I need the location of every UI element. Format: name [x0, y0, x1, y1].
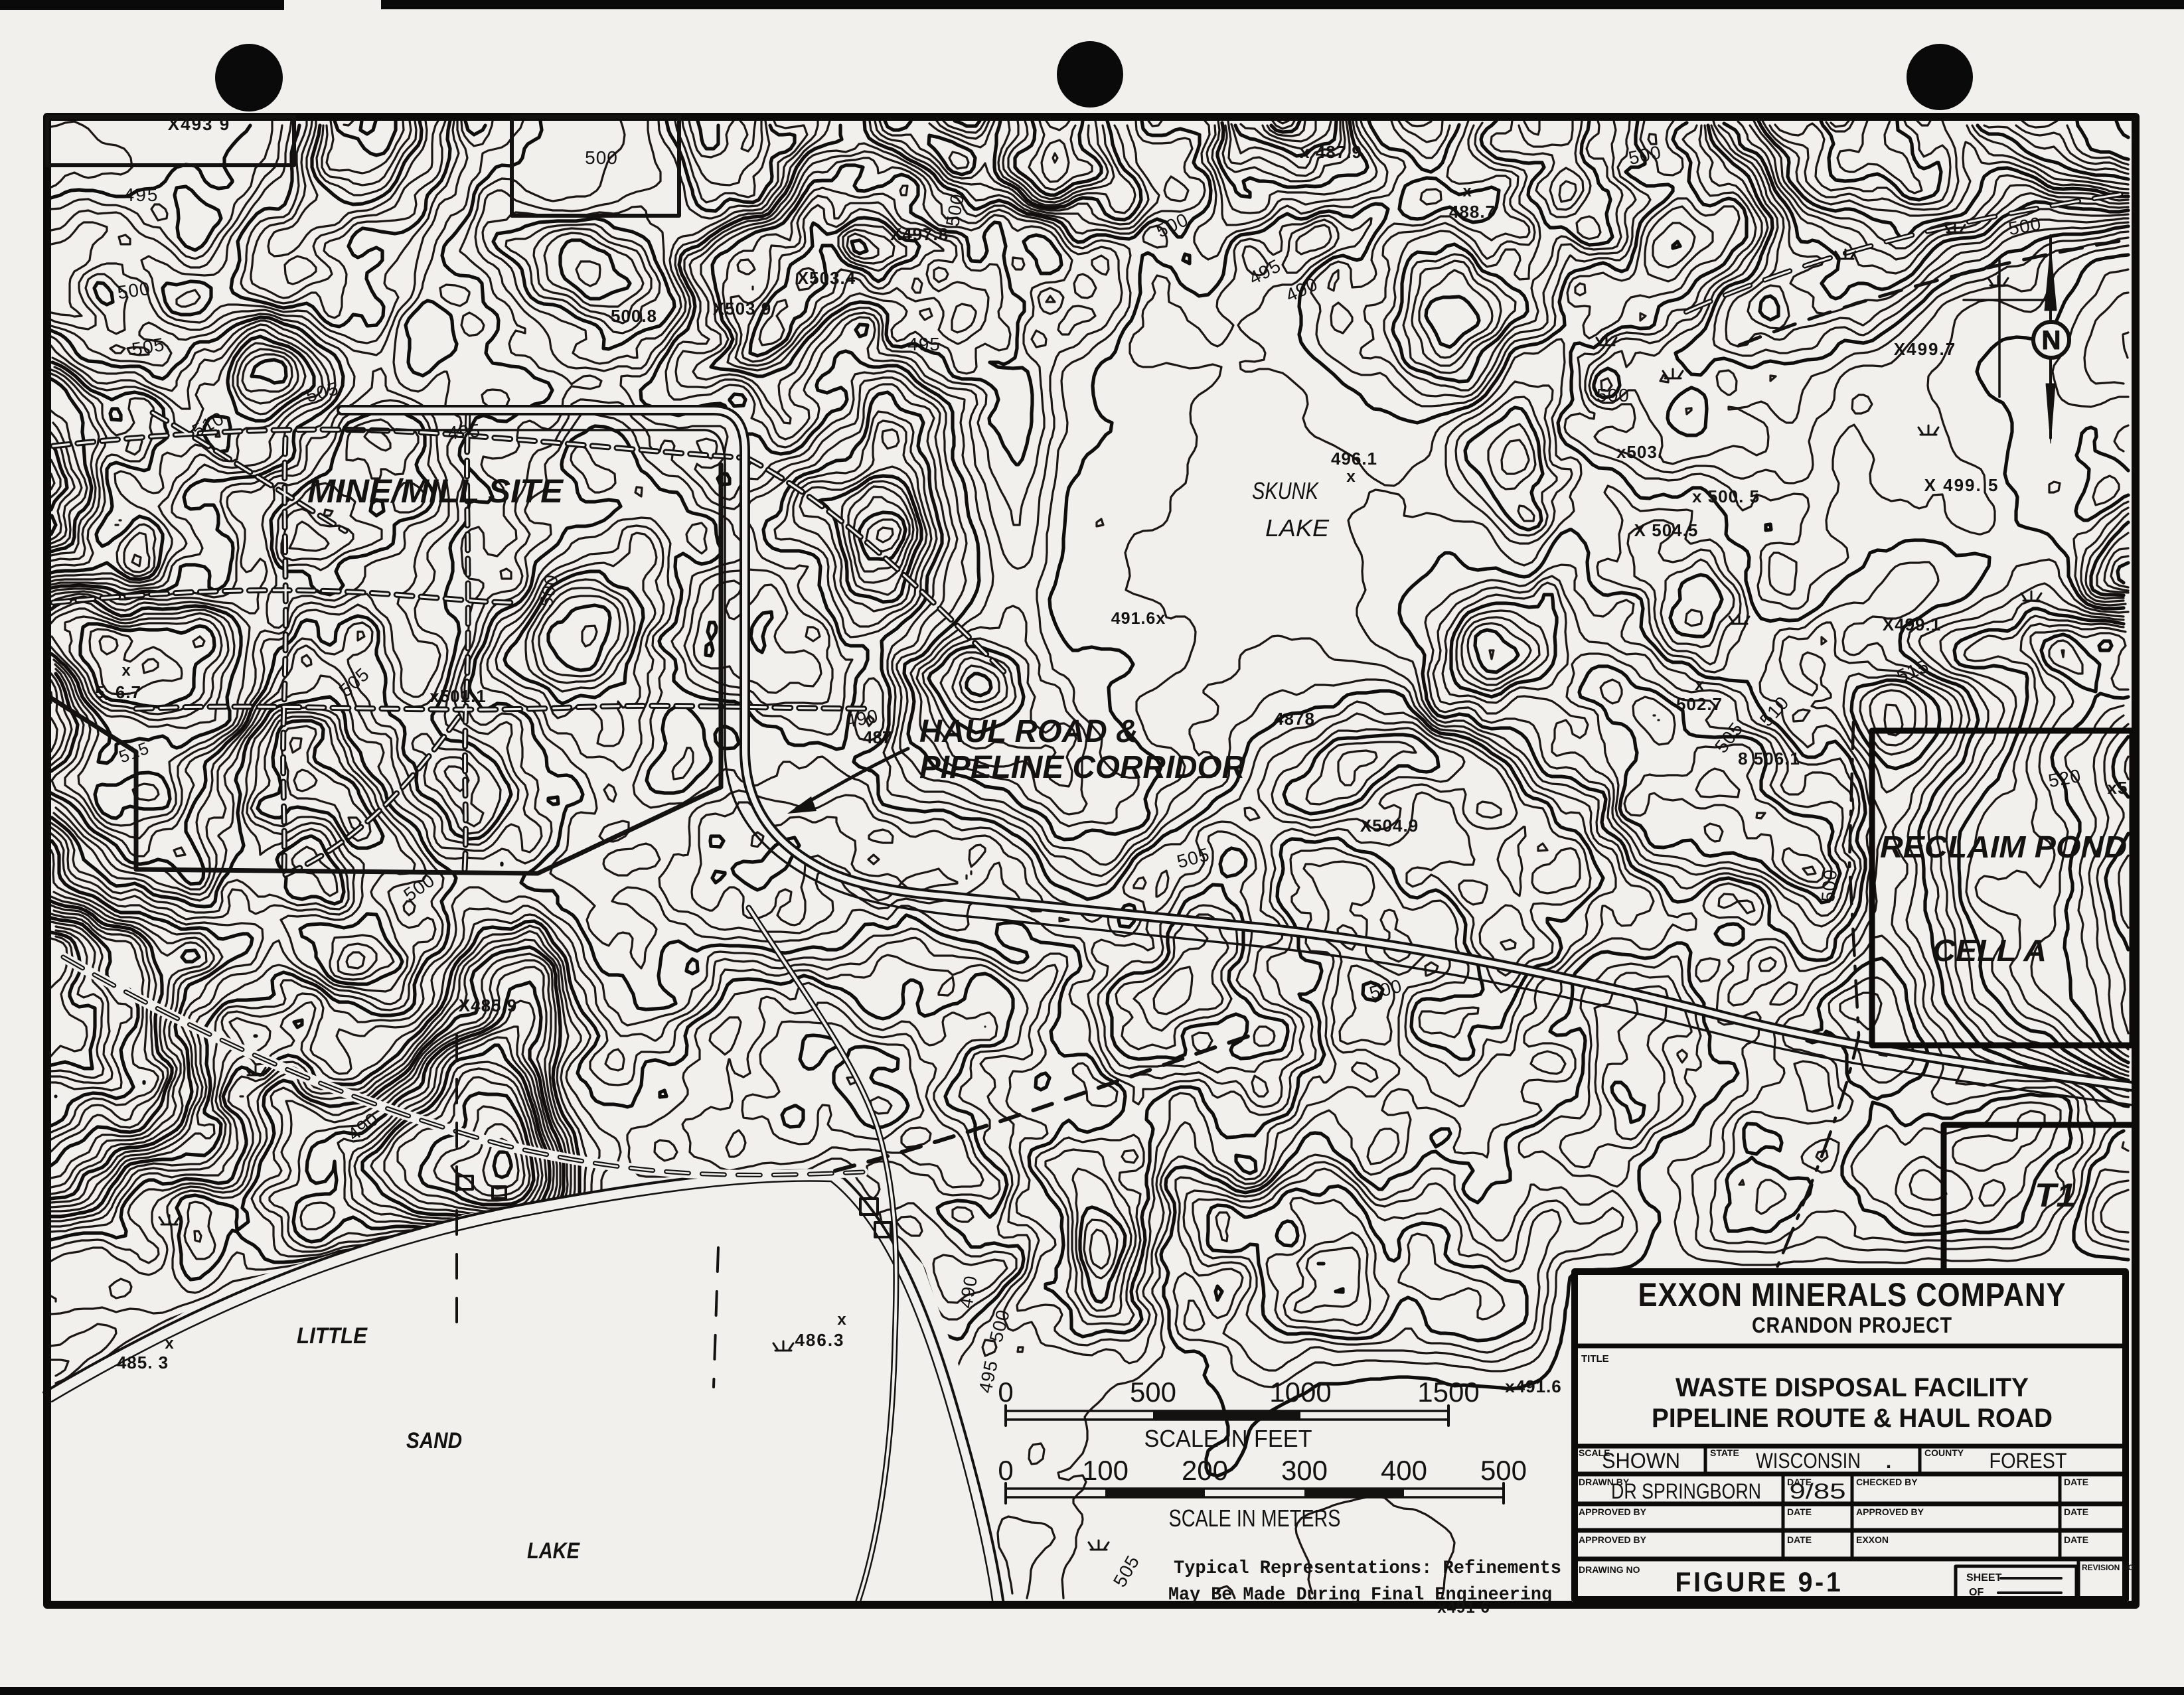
svg-text:x 487.9: x 487.9 — [1300, 142, 1362, 162]
svg-text:N: N — [2042, 326, 2061, 355]
svg-text:486.3: 486.3 — [795, 1330, 844, 1350]
svg-text:X 504.5: X 504.5 — [1634, 520, 1699, 540]
svg-text:485. 3: 485. 3 — [117, 1353, 169, 1372]
svg-text:4878: 4878 — [1274, 709, 1315, 729]
svg-text:FIGURE 9-1: FIGURE 9-1 — [1676, 1566, 1843, 1597]
svg-text:CRANDON PROJECT: CRANDON PROJECT — [1752, 1313, 1952, 1337]
svg-text:x: x — [121, 662, 131, 680]
svg-text:100: 100 — [1082, 1455, 1129, 1486]
svg-text:500: 500 — [1480, 1455, 1527, 1486]
svg-text:X499.7: X499.7 — [1894, 339, 1956, 359]
svg-text:DATE: DATE — [2064, 1507, 2088, 1517]
svg-text:x 500. 5: x 500. 5 — [1692, 486, 1760, 506]
svg-text:COUNTY: COUNTY — [1924, 1447, 1964, 1458]
svg-text:SCALE IN FEET: SCALE IN FEET — [1144, 1425, 1312, 1452]
svg-text:x: x — [837, 1311, 846, 1329]
svg-text:SKUNK: SKUNK — [1252, 477, 1320, 504]
svg-text:495: 495 — [907, 334, 941, 354]
svg-text:WASTE DISPOSAL FACILITY: WASTE DISPOSAL FACILITY — [1676, 1373, 2029, 1402]
svg-text:300: 300 — [1281, 1455, 1328, 1486]
svg-text:HAUL ROAD &: HAUL ROAD & — [919, 714, 1138, 749]
svg-text:x: x — [1695, 674, 1705, 694]
svg-text:DATE: DATE — [2064, 1477, 2088, 1487]
svg-text:x5: x5 — [2108, 778, 2128, 798]
svg-text:X503 9: X503 9 — [713, 299, 771, 319]
svg-text:TITLE: TITLE — [1581, 1353, 1609, 1364]
svg-text:500.8: 500.8 — [611, 306, 657, 326]
svg-text:496.1: 496.1 — [1331, 449, 1377, 469]
svg-text:500: 500 — [585, 147, 618, 168]
svg-text:495: 495 — [124, 184, 159, 205]
svg-text:491.6x: 491.6x — [1111, 609, 1166, 628]
svg-text:PIPELINE ROUTE & HAUL ROAD: PIPELINE ROUTE & HAUL ROAD — [1652, 1404, 2053, 1433]
svg-text:X485.9: X485.9 — [459, 995, 517, 1015]
svg-text:9/85: 9/85 — [1790, 1479, 1846, 1503]
svg-text:X 499. 5: X 499. 5 — [1924, 475, 1999, 495]
svg-text:STATE: STATE — [1710, 1447, 1739, 1458]
svg-text:487: 487 — [863, 727, 892, 747]
svg-text:CELL A: CELL A — [1932, 933, 2047, 968]
svg-text:x: x — [165, 1335, 174, 1353]
svg-text:502.7: 502.7 — [1676, 694, 1723, 714]
svg-text:LAKE: LAKE — [1265, 514, 1330, 542]
svg-text:X497.8: X497.8 — [890, 224, 949, 244]
svg-text:T1: T1 — [2035, 1177, 2076, 1214]
svg-text:REVISION NO: REVISION NO — [2082, 1563, 2134, 1572]
svg-text:488.7: 488.7 — [1449, 202, 1496, 222]
svg-text:0: 0 — [998, 1455, 1013, 1486]
svg-text:X499.1: X499.1 — [1883, 615, 1941, 634]
svg-text:EXXON: EXXON — [1856, 1534, 1889, 1545]
svg-text:x501.1: x501.1 — [429, 686, 487, 706]
svg-text:WISCONSIN: WISCONSIN — [1756, 1449, 1861, 1473]
svg-text:SHOWN: SHOWN — [1602, 1449, 1680, 1473]
svg-text:500: 500 — [1130, 1376, 1176, 1408]
svg-text:0: 0 — [998, 1376, 1013, 1408]
svg-text:X504.9: X504.9 — [1360, 816, 1419, 836]
svg-text:x503.: x503. — [1616, 442, 1663, 462]
svg-text:SHEET: SHEET — [1966, 1572, 2002, 1584]
svg-text:X503.4: X503.4 — [797, 268, 856, 288]
svg-text:500: 500 — [1818, 868, 1841, 903]
svg-text:RECLAIM POND: RECLAIM POND — [1880, 830, 2127, 864]
svg-text:x: x — [1346, 468, 1356, 486]
svg-text:200: 200 — [1182, 1455, 1228, 1486]
svg-text:SCALE IN METERS: SCALE IN METERS — [1169, 1505, 1341, 1532]
svg-text:495: 495 — [447, 420, 481, 443]
svg-text:LITTLE: LITTLE — [297, 1323, 368, 1349]
svg-text:EXXON MINERALS COMPANY: EXXON MINERALS COMPANY — [1638, 1276, 2067, 1313]
svg-text:OF: OF — [1969, 1587, 1984, 1598]
svg-text:DRAWING NO: DRAWING NO — [1579, 1564, 1640, 1575]
svg-text:MINE/MILL SITE: MINE/MILL SITE — [307, 473, 564, 510]
svg-text:400: 400 — [1381, 1455, 1427, 1486]
svg-text:DATE: DATE — [1787, 1534, 1812, 1545]
svg-text:1500: 1500 — [1417, 1376, 1479, 1408]
svg-text:x491.6: x491.6 — [1505, 1376, 1562, 1396]
svg-text:Typical Representations: Refi: Typical Representations: Refinements — [1174, 1558, 1561, 1579]
svg-text:DR SPRINGBORN: DR SPRINGBORN — [1611, 1479, 1761, 1503]
svg-text:LAKE: LAKE — [527, 1538, 580, 1564]
svg-text:DATE: DATE — [2064, 1534, 2088, 1545]
svg-text:x: x — [1462, 183, 1472, 200]
svg-text:X493 9: X493 9 — [168, 114, 230, 134]
svg-text:.: . — [1886, 1451, 1891, 1473]
svg-text:8 506.1: 8 506.1 — [1738, 749, 1800, 769]
svg-text:5_6.7: 5_6.7 — [95, 682, 141, 702]
svg-text:APPROVED BY: APPROVED BY — [1579, 1534, 1647, 1545]
svg-text:FOREST: FOREST — [1989, 1449, 2067, 1473]
svg-text:500: 500 — [1597, 385, 1630, 405]
svg-text:PIPELINE CORRIDOR: PIPELINE CORRIDOR — [919, 750, 1245, 785]
svg-text:1000: 1000 — [1269, 1376, 1331, 1408]
svg-text:CHECKED BY: CHECKED BY — [1856, 1477, 1918, 1487]
svg-text:May Be Made During Final Engin: May Be Made During Final Engineering — [1168, 1585, 1552, 1605]
svg-text:APPROVED BY: APPROVED BY — [1579, 1507, 1647, 1517]
svg-text:APPROVED BY: APPROVED BY — [1856, 1507, 1924, 1517]
svg-text:SAND: SAND — [406, 1428, 462, 1453]
svg-text:DATE: DATE — [1787, 1507, 1812, 1517]
